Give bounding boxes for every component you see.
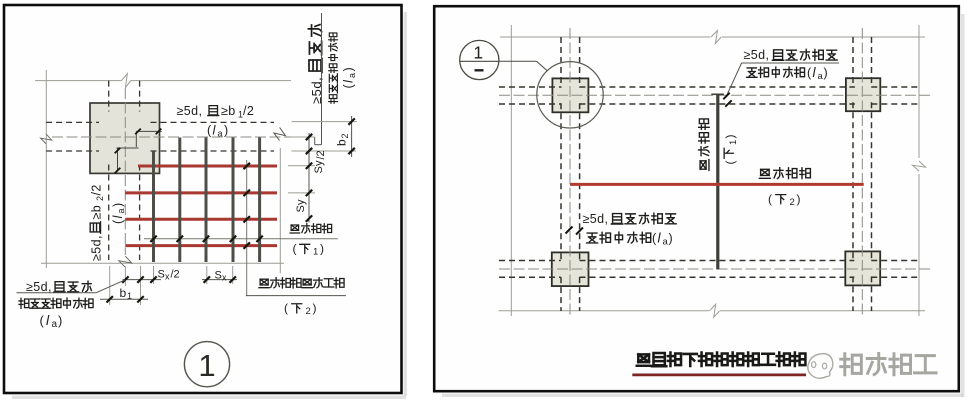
svg-text:1: 1 — [473, 43, 483, 63]
svg-text:): ) — [824, 66, 828, 80]
svg-text:2: 2 — [95, 196, 105, 201]
svg-text:1: 1 — [728, 140, 739, 145]
svg-text:a: a — [52, 319, 58, 330]
svg-text:a: a — [218, 129, 223, 139]
svg-text:/2: /2 — [315, 150, 327, 159]
svg-text:/2: /2 — [243, 104, 254, 118]
svg-text:≥5d,: ≥5d, — [177, 104, 203, 118]
svg-text:): ) — [58, 313, 62, 328]
svg-text:/2: /2 — [90, 184, 104, 195]
svg-text:y: y — [313, 160, 325, 166]
svg-text:(: ( — [723, 161, 737, 165]
svg-text:x: x — [222, 272, 227, 282]
svg-text:): ) — [111, 203, 125, 207]
svg-text:): ) — [320, 242, 324, 256]
svg-text:2: 2 — [790, 197, 795, 208]
svg-text:S: S — [215, 269, 222, 281]
svg-text:S: S — [295, 205, 307, 212]
svg-text:): ) — [723, 135, 737, 139]
svg-text:≥5d,: ≥5d, — [744, 48, 770, 62]
svg-text:): ) — [224, 124, 228, 138]
svg-text:a: a — [347, 73, 357, 78]
svg-text:1: 1 — [127, 291, 132, 301]
svg-text:(: ( — [40, 313, 45, 328]
svg-text:1: 1 — [198, 348, 215, 383]
svg-text:1: 1 — [313, 247, 318, 258]
svg-text:): ) — [669, 232, 673, 246]
svg-text:S: S — [313, 166, 325, 173]
svg-text:b: b — [335, 139, 349, 146]
svg-text:): ) — [797, 192, 801, 206]
svg-text:≥b: ≥b — [221, 104, 236, 118]
svg-text:y: y — [295, 199, 307, 205]
svg-text:(: ( — [293, 242, 297, 256]
svg-text:≥5d,: ≥5d, — [26, 280, 52, 294]
svg-text:(: ( — [284, 301, 288, 315]
svg-text:2: 2 — [340, 133, 350, 138]
svg-text:): ) — [313, 301, 317, 315]
svg-text:≥b: ≥b — [90, 205, 104, 220]
svg-text:2: 2 — [306, 306, 311, 317]
svg-text:/2: /2 — [171, 269, 180, 281]
svg-text:≥5d,: ≥5d, — [583, 212, 609, 226]
svg-text:): ) — [342, 67, 356, 71]
svg-text:(: ( — [768, 192, 772, 206]
svg-text:≥5d,: ≥5d, — [90, 235, 104, 261]
svg-text:b: b — [120, 286, 127, 300]
svg-text:a: a — [116, 208, 126, 213]
svg-text:x: x — [165, 272, 170, 282]
svg-text:S: S — [158, 269, 165, 281]
